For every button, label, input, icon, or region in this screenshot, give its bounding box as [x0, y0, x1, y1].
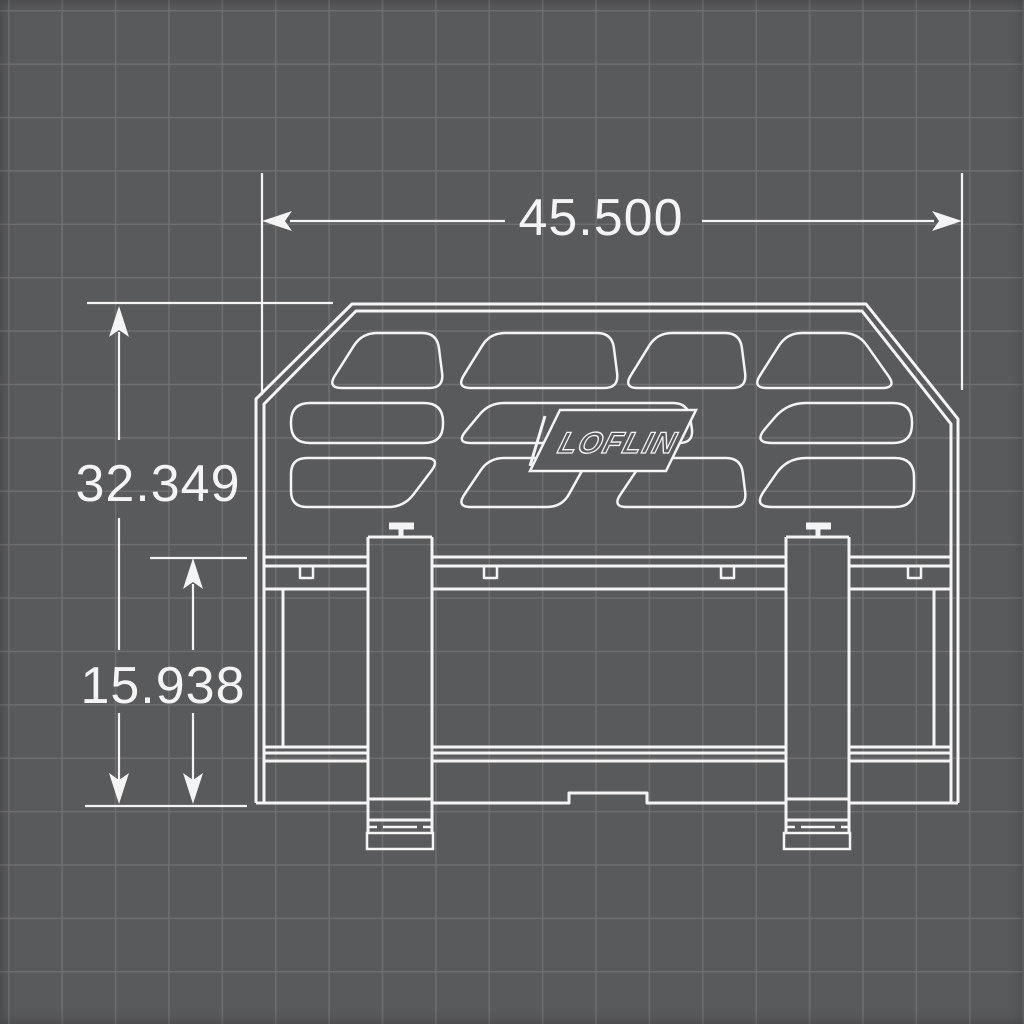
arrowhead-right — [932, 211, 962, 231]
grille-slot — [291, 458, 435, 507]
left-post-heel-lines — [368, 799, 432, 820]
grille-slot — [461, 333, 617, 388]
frame-outer-edge — [256, 304, 958, 803]
frame-bottom-edge — [256, 793, 958, 803]
frame-outline — [256, 304, 958, 803]
carriage-notch — [484, 566, 497, 578]
right-post-foot-plate — [784, 833, 850, 849]
grille-slot — [760, 403, 912, 443]
grille-slot — [757, 333, 891, 388]
left-fork-post — [367, 526, 433, 849]
grille-slot — [332, 333, 442, 388]
logo-text: LOFLIN — [554, 427, 681, 460]
logo-badge: LOFLIN — [530, 410, 696, 471]
grille-slot — [628, 333, 745, 388]
right-post-body — [786, 537, 849, 833]
arrowhead-left — [262, 211, 292, 231]
left-post-body — [368, 537, 432, 833]
carriage-notch — [908, 566, 921, 578]
grille-slot — [760, 458, 914, 507]
grille-slot — [291, 403, 443, 443]
carriage-notch — [300, 566, 313, 578]
carriage-notches — [300, 566, 921, 578]
dimension-label-lower-height: 15.938 — [63, 660, 263, 712]
blueprint-canvas: LOFLIN — [0, 0, 1024, 1024]
left-post-foot-plate — [367, 833, 433, 849]
right-fork-post — [784, 526, 850, 849]
right-post-heel-lines — [786, 799, 849, 820]
dimension-label-total-height: 32.349 — [58, 458, 258, 510]
dimension-label-width: 45.500 — [501, 192, 701, 244]
fork-posts — [367, 526, 850, 849]
carriage-notch — [721, 566, 734, 578]
